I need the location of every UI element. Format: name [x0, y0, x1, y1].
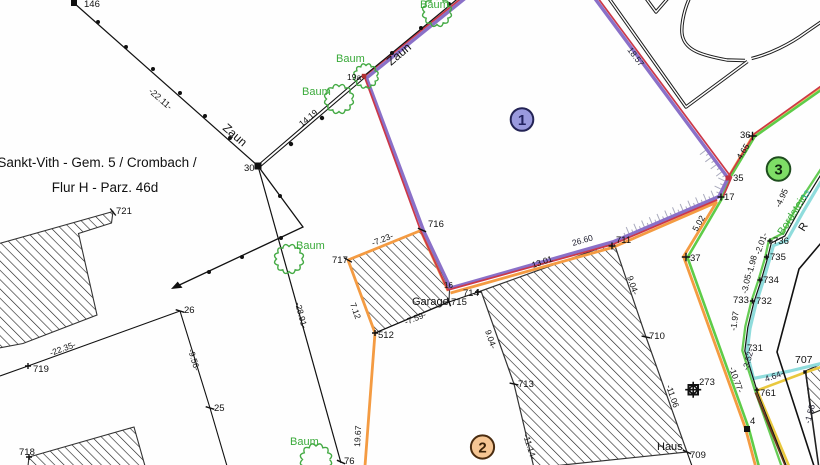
svg-text:714: 714 — [463, 288, 479, 299]
svg-text:76: 76 — [344, 456, 355, 465]
svg-text:37: 37 — [690, 253, 701, 264]
svg-text:735: 735 — [770, 252, 786, 263]
svg-text:25: 25 — [214, 403, 225, 414]
svg-text:30: 30 — [244, 163, 255, 174]
svg-text:716: 716 — [428, 219, 444, 230]
svg-text:719: 719 — [33, 364, 49, 375]
svg-text:761: 761 — [760, 388, 776, 399]
svg-text:713: 713 — [518, 379, 534, 390]
svg-text:36: 36 — [740, 130, 751, 141]
svg-text:717: 717 — [332, 255, 348, 266]
svg-text:711: 711 — [616, 235, 631, 246]
svg-text:Sankt-Vith - Gem. 5 / Crombach: Sankt-Vith - Gem. 5 / Crombach / — [0, 155, 197, 170]
svg-text:Haus: Haus — [657, 441, 683, 453]
svg-text:4: 4 — [750, 416, 755, 427]
svg-text:512: 512 — [378, 330, 394, 341]
svg-text:1: 1 — [518, 112, 526, 129]
svg-text:732: 732 — [756, 296, 772, 307]
svg-text:146: 146 — [84, 0, 100, 10]
svg-text:16: 16 — [444, 281, 453, 290]
svg-text:Baum: Baum — [420, 0, 449, 11]
svg-text:26: 26 — [184, 305, 195, 316]
svg-text:707: 707 — [795, 354, 813, 366]
svg-text:Baum: Baum — [336, 53, 365, 65]
svg-text:273: 273 — [699, 377, 715, 388]
svg-text:736: 736 — [773, 236, 789, 247]
svg-text:721: 721 — [116, 206, 132, 217]
svg-text:17: 17 — [724, 192, 735, 203]
svg-text:Baum: Baum — [302, 86, 331, 98]
svg-text:19a: 19a — [347, 72, 361, 82]
svg-text:Flur H - Parz. 46d: Flur H - Parz. 46d — [52, 180, 159, 195]
svg-text:19.67: 19.67 — [352, 425, 363, 447]
svg-text:709: 709 — [690, 450, 706, 461]
svg-text:2: 2 — [478, 440, 486, 457]
svg-text:733: 733 — [733, 295, 749, 306]
svg-text:710: 710 — [649, 331, 665, 342]
svg-text:718: 718 — [19, 447, 35, 458]
svg-text:Baum: Baum — [296, 240, 325, 252]
svg-text:35: 35 — [733, 173, 744, 184]
svg-text:Baum: Baum — [290, 436, 319, 448]
svg-text:734: 734 — [763, 275, 779, 286]
svg-text:3: 3 — [774, 162, 782, 179]
svg-text:Garage: Garage — [412, 296, 449, 308]
